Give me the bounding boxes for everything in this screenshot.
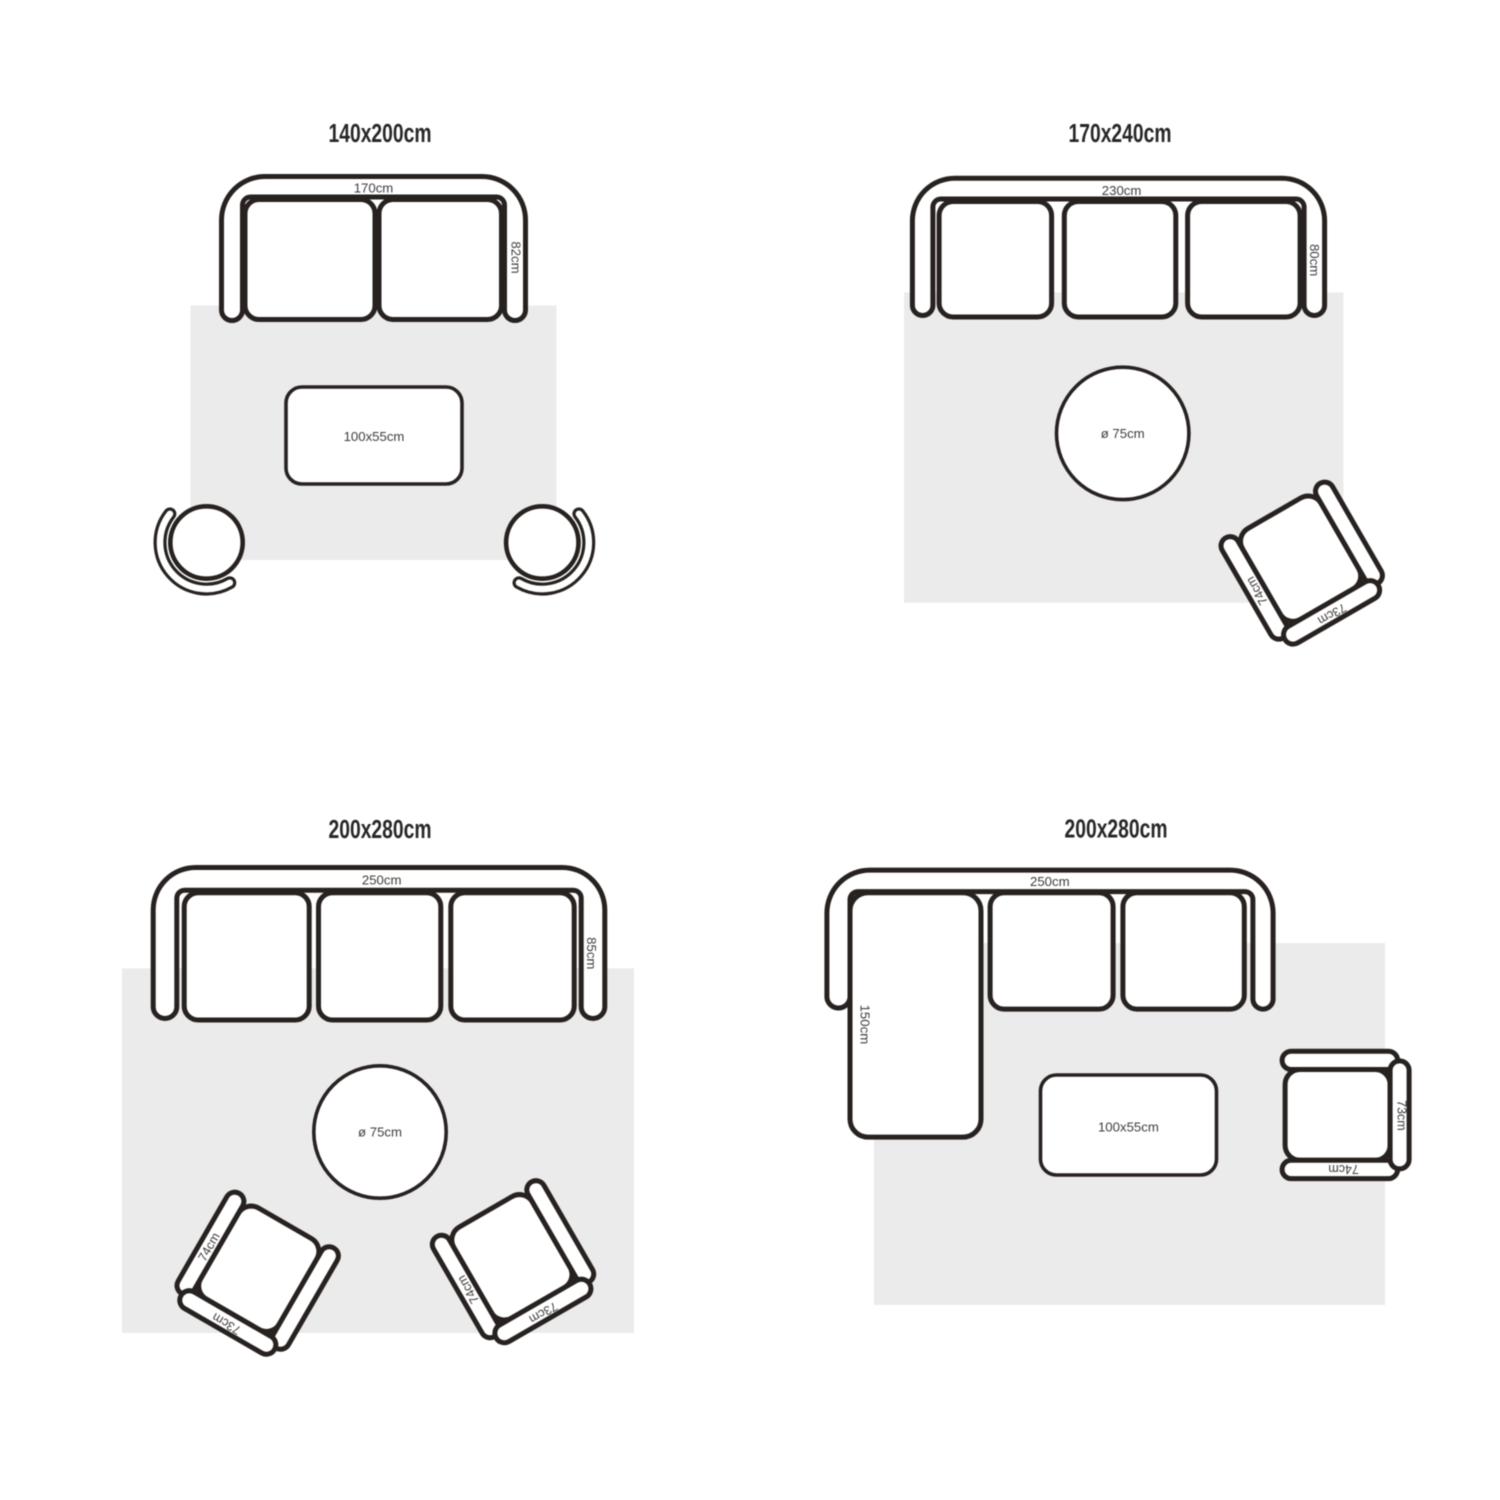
svg-text:74cm: 74cm [1328, 1162, 1359, 1176]
svg-text:100x55cm: 100x55cm [1098, 1120, 1159, 1135]
svg-text:250cm: 250cm [362, 873, 402, 888]
svg-text:85cm: 85cm [584, 937, 599, 969]
svg-text:230cm: 230cm [1102, 183, 1142, 198]
svg-text:200x280cm: 200x280cm [1065, 816, 1168, 844]
svg-text:73cm: 73cm [1394, 1100, 1408, 1131]
svg-text:170cm: 170cm [354, 181, 394, 196]
svg-text:82cm: 82cm [508, 241, 523, 273]
svg-text:150cm: 150cm [857, 1005, 872, 1045]
svg-text:ø 75cm: ø 75cm [1101, 426, 1145, 441]
svg-text:200x280cm: 200x280cm [329, 816, 432, 844]
svg-text:ø 75cm: ø 75cm [358, 1125, 402, 1140]
svg-text:100x55cm: 100x55cm [344, 429, 405, 444]
svg-text:80cm: 80cm [1307, 244, 1322, 276]
svg-text:250cm: 250cm [1030, 874, 1070, 889]
svg-text:170x240cm: 170x240cm [1069, 120, 1172, 148]
svg-text:140x200cm: 140x200cm [329, 120, 432, 148]
